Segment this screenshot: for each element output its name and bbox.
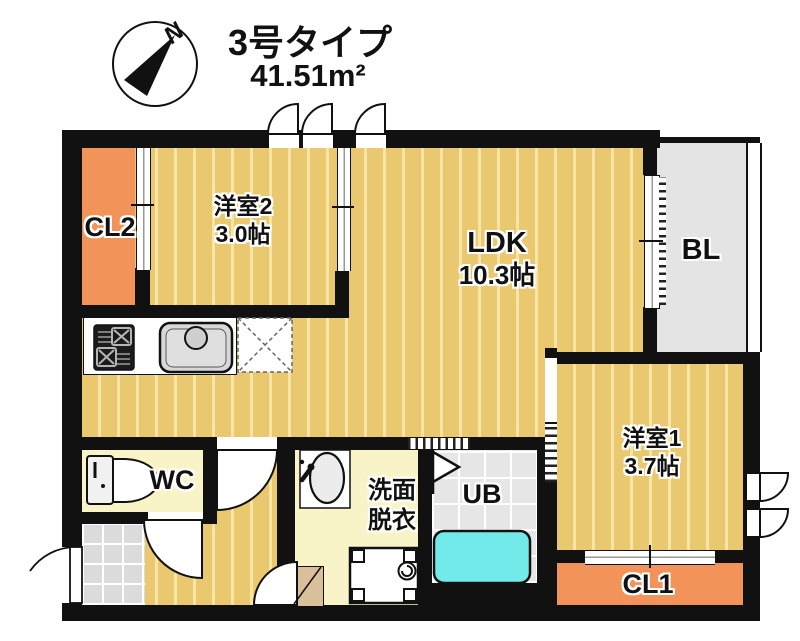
compass-n-label: N [159,17,190,49]
plan-area: 41.51m² [250,58,365,94]
front-door-opening [62,547,82,603]
y1-door-opening [545,358,557,422]
balcony-window [644,175,660,309]
wall-ub-bottom [418,583,557,605]
balcony-window-screen [659,177,666,305]
label-senmen-line1: 洗面 [368,478,416,503]
label-youshitsu2-size: 3.0帖 [216,222,271,246]
y1-wall-hatch [545,424,557,482]
corridor-door-opening [217,437,277,450]
wall-bottom [62,605,760,621]
floor-plan: N 3号タイプ 41.51m² CL2 洋室2 3.0帖 LDK 10.3帖 B… [0,0,800,641]
room-ub [432,450,537,583]
label-cl2: CL2 [84,213,135,241]
wall-cl1-right-chunk [715,550,745,563]
shoe-cabinet [294,566,324,607]
window-notch-2 [747,509,760,537]
label-ub: UB [463,480,502,508]
label-wc: WC [150,466,195,494]
wall-y2-ldk-lower [335,271,349,318]
wall-ldk-bottom [62,437,557,450]
balcony-railing [746,143,762,352]
label-cl1: CL1 [622,570,673,598]
y2-ldk-sliding-door [337,148,351,271]
wall-ub-left [418,450,432,605]
wall-y2-bottom [82,305,349,318]
wall-y1-top [545,352,760,364]
label-bl: BL [682,235,721,265]
compass-icon: N [113,17,197,106]
label-ldk-size: 10.3帖 [459,262,536,289]
label-senmen-line2: 脱衣 [368,508,416,533]
wall-balcony-top [655,137,760,143]
wall-cl2-door-chunk [135,268,150,305]
wall-cl1-left-chunk [545,550,585,563]
window-gap-3 [355,132,387,148]
cl2-sliding-door [136,148,151,270]
casement-window-icon [760,473,788,501]
wc-door-opening [148,512,203,524]
cl1-sliding-door [585,550,715,565]
window-notch-1 [747,473,760,501]
label-youshitsu2-name: 洋室2 [214,194,273,218]
window-gap-2 [302,132,334,148]
casement-window-icon [760,509,788,537]
label-youshitsu1-name: 洋室1 [623,426,682,450]
label-ldk-name: LDK [467,228,527,258]
wall-wc-bottom [62,512,148,524]
wall-balwin-top [643,148,657,175]
kitchen-counter [84,318,236,374]
wall-corridor-senmen [277,450,295,572]
ub-wall-hatch [408,438,470,449]
wall-balwin-bottom [643,307,657,352]
wall-wc-right [203,437,217,524]
window-gap-1 [268,132,300,148]
label-youshitsu1-size: 3.7帖 [625,454,680,478]
entrance-tile [82,524,145,605]
